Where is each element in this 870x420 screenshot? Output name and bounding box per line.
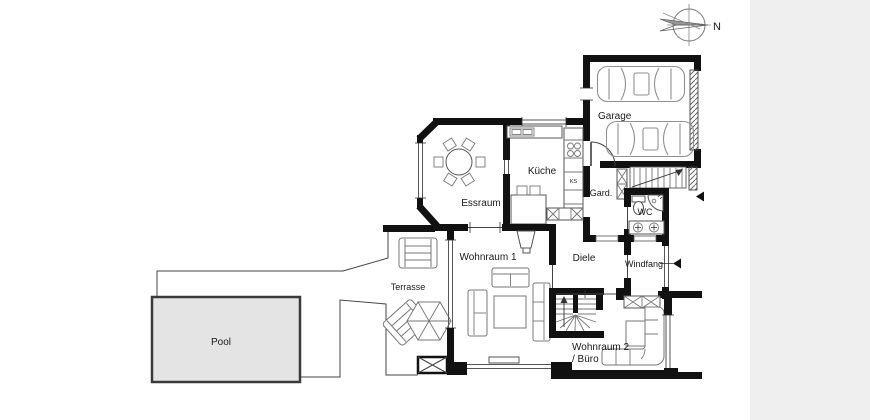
pool: Pool [152,297,300,382]
stairs-icon [630,167,697,190]
gard-label: Gard. [590,188,613,198]
sofa-icon [468,290,487,336]
stairs-icon [549,288,604,338]
kitchen-counter-icon [507,126,562,138]
windfang-label: Windfang [625,259,663,269]
diele-label: Diele [573,253,596,264]
wohnraum2-label: Wohnraum 2 [572,342,630,353]
sink-icon [629,221,664,234]
wohnraum1-label: Wohnraum 1 [459,252,517,263]
kueche: KS Küche [500,117,590,231]
wohnraum1: Wohnraum 1 [418,222,572,379]
window-icon [467,357,551,369]
floor-plan: Pool Terrasse [0,0,870,420]
sofa-icon [533,283,550,341]
wc-label: WC [638,207,653,217]
essraum-label: Essraum [461,198,500,209]
compass-icon: N [660,4,721,46]
lounger-icon [399,238,437,268]
windfang: Windfang [624,240,702,300]
coffee-table-icon [494,296,526,328]
kitchen-cupboard-icon [547,208,583,220]
dining-table-icon [434,138,485,186]
garage-label: Garage [598,111,632,122]
entrance-arrow-icon [673,259,681,269]
sideboard-icon [624,296,660,308]
terrace-north-wall [383,225,435,232]
kueche-label: Küche [528,166,557,177]
fridge-label: KS [570,179,578,185]
chimney-icon [418,357,447,373]
car-icon [607,122,694,157]
window-icon [505,160,509,174]
fireplace-icon [517,231,535,253]
kitchen-island-icon [511,186,546,224]
essraum: Essraum [415,118,505,226]
kitchen-appliance-column-icon: KS [564,128,583,218]
terrasse-label: Terrasse [391,282,426,292]
wc: WC [624,188,669,242]
north-label: N [713,21,721,33]
terrasse: Terrasse [382,238,451,346]
floor-plan-canvas: Pool Terrasse [0,0,870,420]
pool-label: Pool [211,337,231,348]
entrance-arrow-icon [696,192,704,202]
buero-label: / Büro [572,354,599,365]
car-icon [598,67,685,102]
window-icon [415,143,426,198]
sofa-icon [492,268,529,287]
